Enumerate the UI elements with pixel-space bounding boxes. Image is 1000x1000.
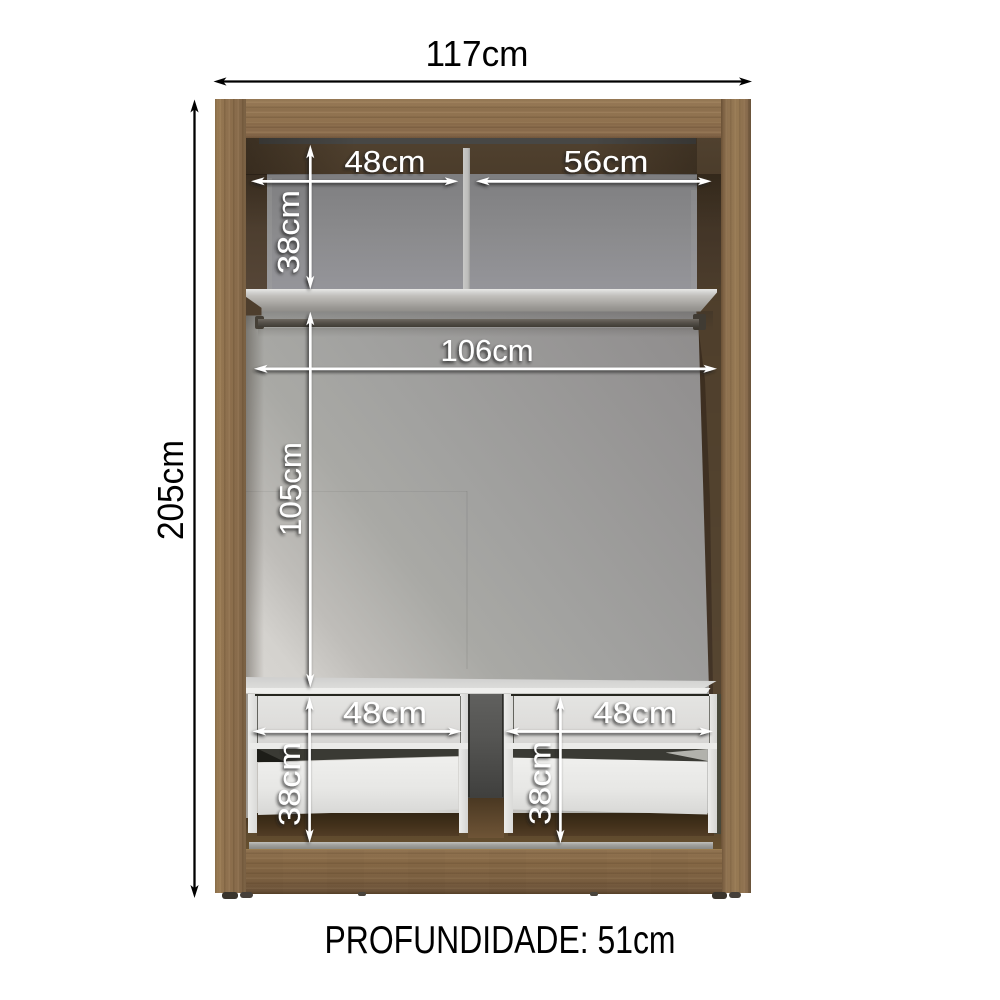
svg-text:48cm: 48cm (345, 144, 426, 179)
svg-text:48cm: 48cm (343, 695, 427, 730)
svg-text:38cm: 38cm (523, 741, 558, 825)
svg-text:105cm: 105cm (273, 442, 308, 536)
svg-text:38cm: 38cm (272, 742, 307, 826)
svg-text:106cm: 106cm (441, 333, 534, 368)
svg-text:205cm: 205cm (150, 440, 191, 540)
svg-text:PROFUNDIDADE: 51cm: PROFUNDIDADE: 51cm (325, 919, 676, 962)
svg-text:56cm: 56cm (564, 144, 649, 179)
svg-text:38cm: 38cm (271, 190, 306, 274)
svg-text:48cm: 48cm (594, 695, 678, 730)
svg-text:117cm: 117cm (426, 33, 529, 74)
